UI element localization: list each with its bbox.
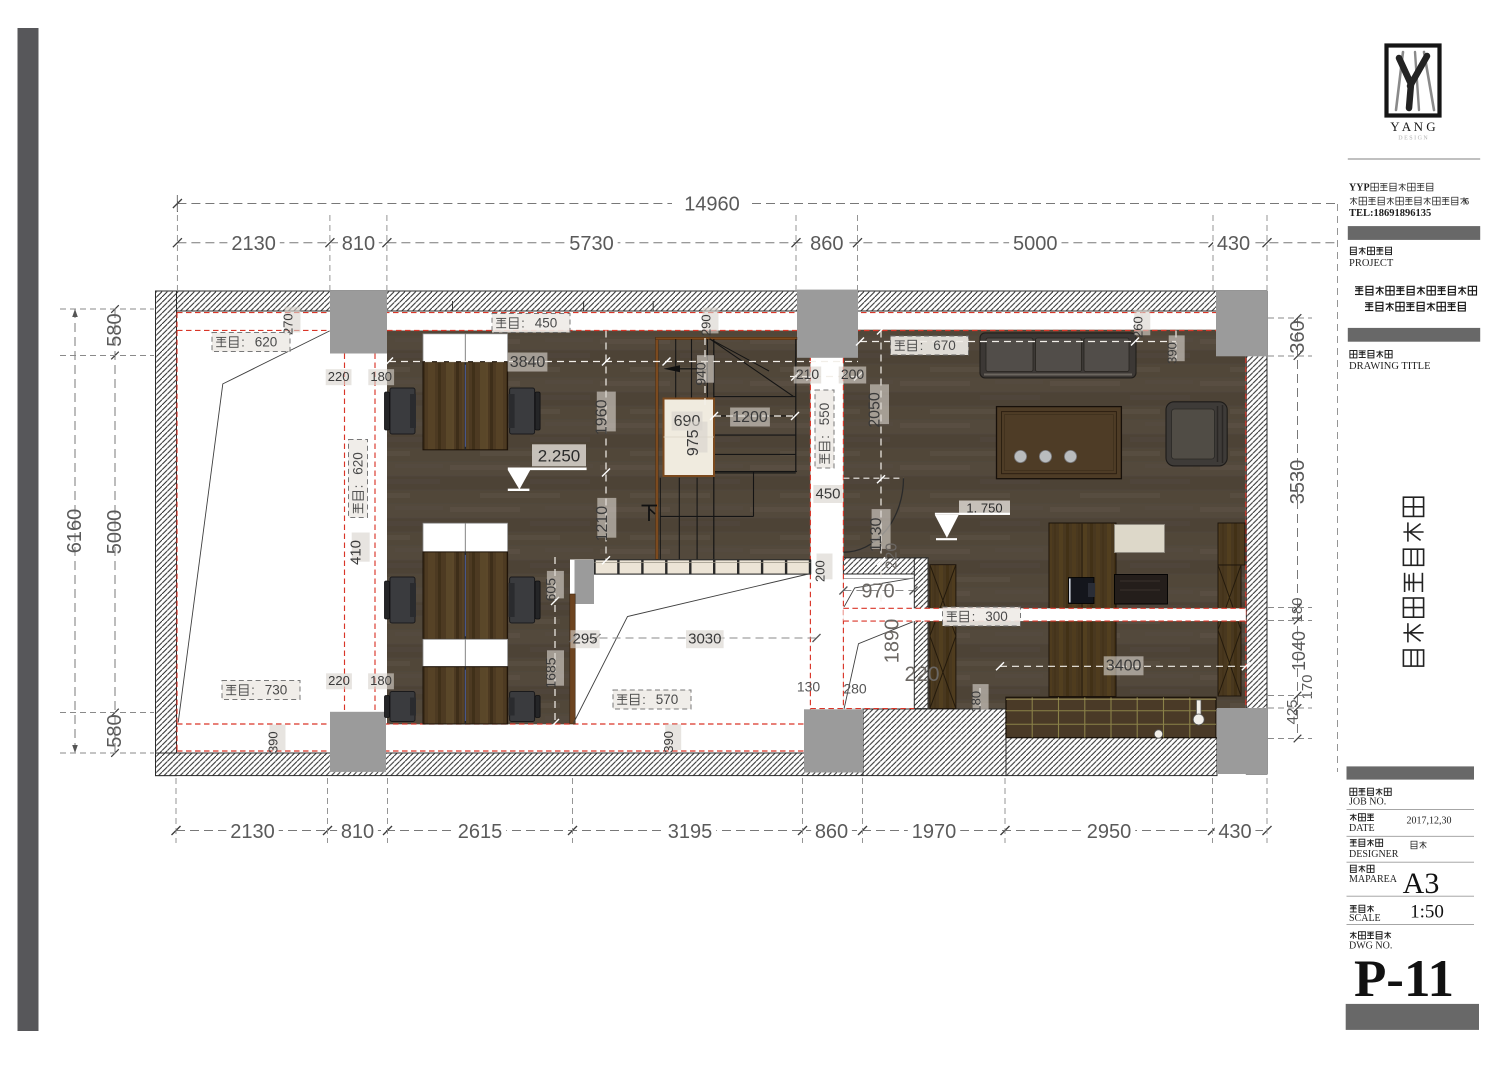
svg-text:295: 295 — [572, 631, 597, 648]
svg-text:YYP: YYP — [1349, 183, 1370, 194]
svg-text:3840: 3840 — [510, 354, 546, 371]
svg-text:DESIGNER: DESIGNER — [1349, 849, 1399, 860]
svg-text:1040: 1040 — [1289, 631, 1309, 671]
svg-text:425: 425 — [1284, 699, 1301, 724]
svg-text:DRAWING TITLE: DRAWING TITLE — [1349, 361, 1431, 372]
svg-text:290: 290 — [699, 314, 714, 336]
svg-text::: : — [642, 693, 645, 707]
svg-text::: : — [251, 684, 254, 698]
svg-text:730: 730 — [265, 683, 288, 698]
svg-text:2130: 2130 — [231, 233, 276, 255]
svg-text:14960: 14960 — [684, 194, 740, 216]
svg-text:620: 620 — [351, 452, 366, 475]
svg-text:670: 670 — [933, 338, 956, 353]
svg-text::: : — [352, 485, 366, 488]
svg-text:1:50: 1:50 — [1410, 902, 1444, 923]
svg-text:2050: 2050 — [867, 392, 884, 428]
svg-text:P-11: P-11 — [1354, 950, 1454, 1008]
svg-text:1960: 1960 — [593, 399, 610, 435]
svg-text:SCALE: SCALE — [1349, 913, 1381, 924]
svg-text:1890: 1890 — [882, 619, 904, 664]
svg-text:JOB NO.: JOB NO. — [1349, 797, 1386, 808]
svg-text::: : — [818, 435, 832, 438]
svg-text:580: 580 — [104, 313, 126, 346]
svg-text::: : — [972, 610, 975, 624]
svg-text::: : — [920, 339, 923, 353]
svg-text:280: 280 — [843, 681, 867, 697]
svg-text::: : — [241, 336, 244, 350]
svg-text:410: 410 — [348, 540, 365, 565]
svg-text::: : — [521, 317, 524, 331]
svg-text:6160: 6160 — [64, 509, 86, 554]
svg-text:TEL:18691896135: TEL:18691896135 — [1349, 208, 1431, 219]
svg-text:860: 860 — [815, 821, 848, 843]
svg-text:360: 360 — [1287, 320, 1309, 353]
svg-text:260: 260 — [1130, 316, 1145, 338]
svg-text:220: 220 — [328, 369, 350, 384]
svg-text:DATE: DATE — [1349, 823, 1375, 834]
svg-text:940: 940 — [693, 362, 709, 386]
svg-text:130: 130 — [797, 679, 821, 695]
svg-text:PROJECT: PROJECT — [1349, 258, 1394, 269]
svg-text:210: 210 — [796, 366, 820, 382]
svg-text:430: 430 — [1218, 821, 1251, 843]
svg-text:390: 390 — [661, 731, 676, 753]
svg-text:2017,12,30: 2017,12,30 — [1407, 816, 1452, 827]
svg-text:2615: 2615 — [458, 821, 503, 843]
svg-text:220: 220 — [884, 543, 901, 570]
svg-text:430: 430 — [1217, 233, 1250, 255]
svg-text:580: 580 — [104, 714, 126, 747]
svg-text:450: 450 — [815, 485, 840, 502]
svg-text:D E S I G N: D E S I G N — [1398, 136, 1428, 142]
svg-text:605: 605 — [542, 578, 558, 602]
svg-text:180: 180 — [370, 369, 392, 384]
svg-text:1970: 1970 — [912, 821, 957, 843]
svg-text:6: 6 — [1465, 197, 1470, 207]
svg-text:860: 860 — [810, 233, 843, 255]
svg-text:975: 975 — [685, 429, 702, 456]
svg-text:3030: 3030 — [688, 631, 721, 648]
svg-text:MAPAREA: MAPAREA — [1349, 874, 1398, 885]
svg-text:970: 970 — [861, 581, 894, 603]
svg-text:1210: 1210 — [594, 506, 611, 542]
svg-text:180: 180 — [969, 691, 984, 713]
svg-text:A3: A3 — [1403, 867, 1440, 900]
svg-text:200: 200 — [841, 366, 865, 382]
svg-text:810: 810 — [342, 233, 375, 255]
svg-text:220: 220 — [328, 673, 350, 688]
svg-text:2950: 2950 — [1087, 821, 1132, 843]
svg-text:Y A N G: Y A N G — [1390, 119, 1435, 134]
svg-text:3400: 3400 — [1106, 658, 1142, 675]
svg-text:390: 390 — [1165, 342, 1180, 364]
svg-text:200: 200 — [813, 560, 828, 582]
svg-text:180: 180 — [370, 673, 392, 688]
svg-text:550: 550 — [817, 403, 832, 426]
svg-text:450: 450 — [535, 316, 558, 331]
svg-text:620: 620 — [255, 335, 278, 350]
svg-text:5000: 5000 — [104, 510, 126, 555]
svg-text:270: 270 — [281, 313, 296, 335]
svg-text:180: 180 — [1289, 597, 1306, 622]
svg-text:3530: 3530 — [1287, 460, 1309, 505]
svg-text:220: 220 — [904, 663, 939, 686]
svg-text:5730: 5730 — [569, 233, 614, 255]
svg-text:1685: 1685 — [543, 657, 559, 688]
svg-text:2.250: 2.250 — [538, 447, 581, 466]
svg-text:3195: 3195 — [668, 821, 713, 843]
svg-text:2130: 2130 — [230, 821, 275, 843]
svg-text:570: 570 — [656, 692, 679, 707]
svg-text:810: 810 — [341, 821, 374, 843]
svg-text:1200: 1200 — [732, 409, 768, 426]
svg-text:300: 300 — [985, 609, 1008, 624]
svg-text:5000: 5000 — [1013, 233, 1058, 255]
svg-text:390: 390 — [266, 731, 281, 753]
